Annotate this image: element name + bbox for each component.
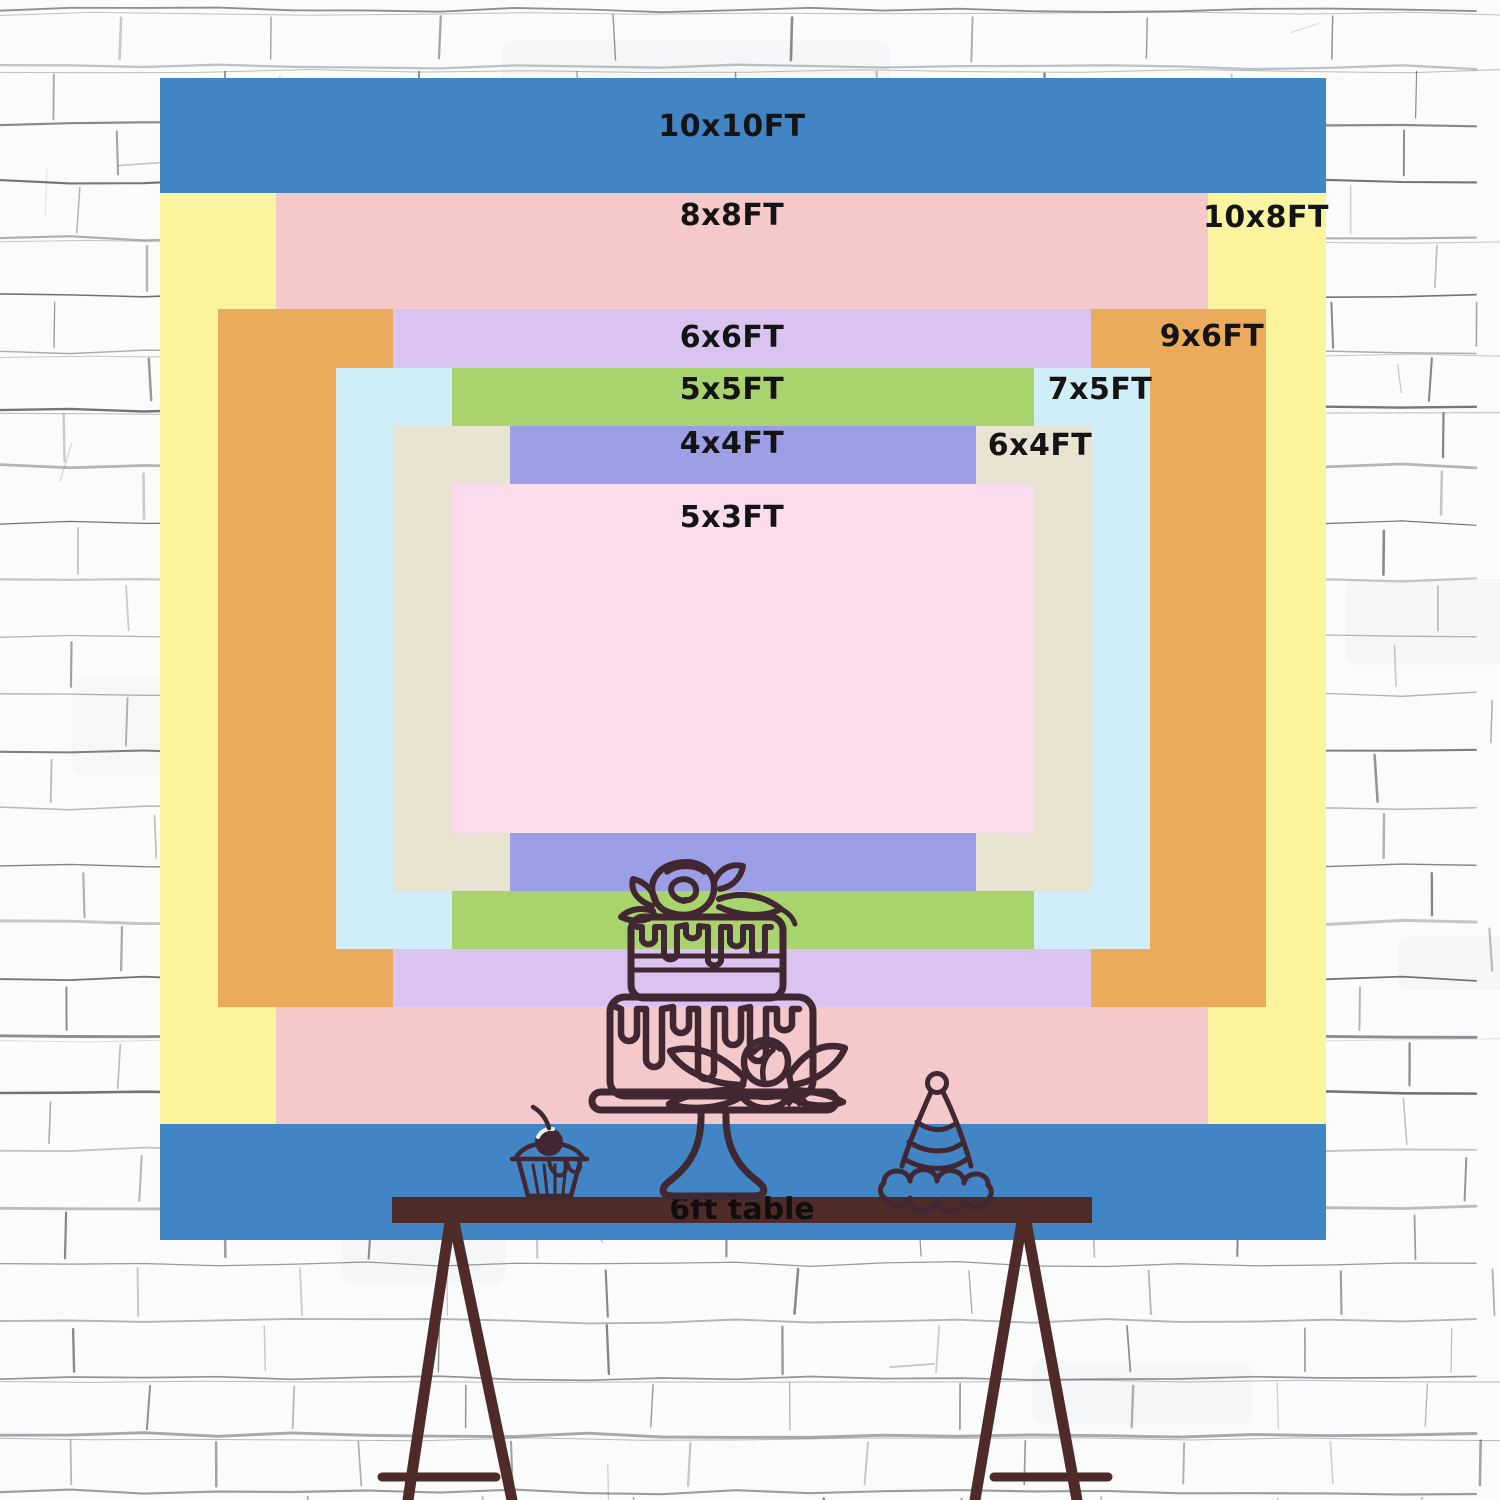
- table-top: 6ft table: [392, 1197, 1092, 1223]
- size-label-6x4ft: 6x4FT: [988, 431, 1093, 461]
- size-label-10x8ft: 10x8FT: [1203, 203, 1329, 233]
- size-label-6x6ft: 6x6FT: [680, 323, 785, 353]
- size-label-5x3ft: 5x3FT: [680, 503, 785, 533]
- size-label-10x10ft: 10x10FT: [658, 112, 805, 142]
- backdrop-size-diagram: 10x10FT10x8FT8x8FT9x6FT6x6FT7x5FT5x5FT6x…: [0, 0, 1500, 1500]
- table-label: 6ft table: [669, 1195, 814, 1225]
- size-label-7x5ft: 7x5FT: [1048, 375, 1153, 405]
- size-rect-5x3ft: [452, 484, 1034, 833]
- scene: 10x10FT10x8FT8x8FT9x6FT6x6FT7x5FT5x5FT6x…: [0, 0, 1500, 1500]
- size-label-4x4ft: 4x4FT: [680, 429, 785, 459]
- size-label-8x8ft: 8x8FT: [680, 201, 785, 231]
- size-label-9x6ft: 9x6FT: [1160, 322, 1265, 352]
- size-label-5x5ft: 5x5FT: [680, 375, 785, 405]
